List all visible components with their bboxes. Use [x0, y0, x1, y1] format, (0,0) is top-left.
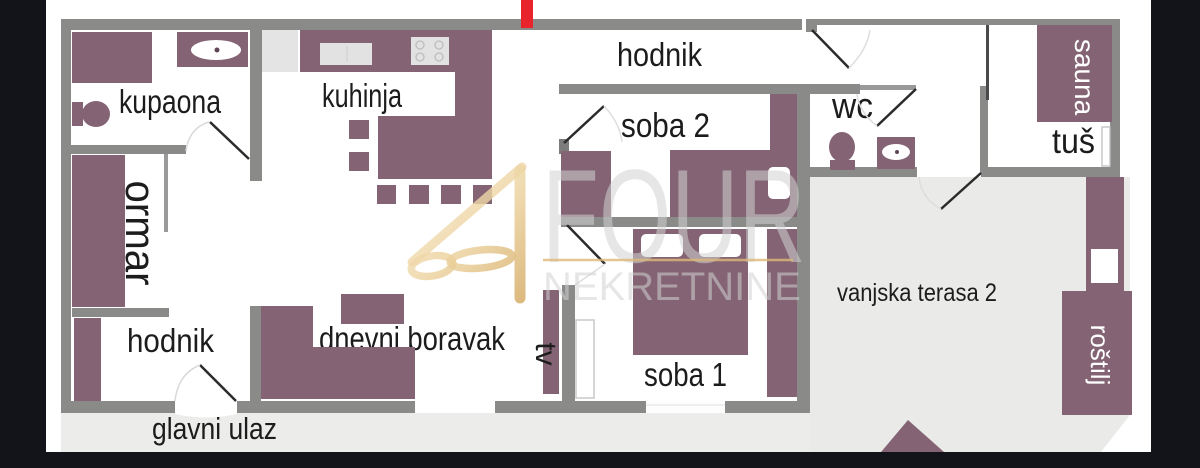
svg-text:soba 2: soba 2 — [621, 107, 710, 145]
svg-text:soba 1: soba 1 — [644, 356, 727, 393]
svg-text:kupaona: kupaona — [119, 83, 222, 120]
svg-text:vanjska terasa 2: vanjska terasa 2 — [837, 279, 997, 307]
svg-text:roštilj: roštilj — [1085, 325, 1115, 386]
svg-text:tv: tv — [529, 342, 562, 365]
svg-text:NEKRETNINE: NEKRETNINE — [543, 265, 801, 309]
svg-text:hodnik: hodnik — [617, 36, 702, 73]
svg-text:ormar: ormar — [117, 181, 164, 286]
svg-text:kuhinja: kuhinja — [322, 77, 402, 114]
svg-text:wc: wc — [831, 85, 873, 126]
svg-text:tuš: tuš — [1052, 122, 1095, 161]
svg-text:hodnik: hodnik — [127, 322, 214, 359]
svg-text:sauna: sauna — [1069, 39, 1100, 116]
